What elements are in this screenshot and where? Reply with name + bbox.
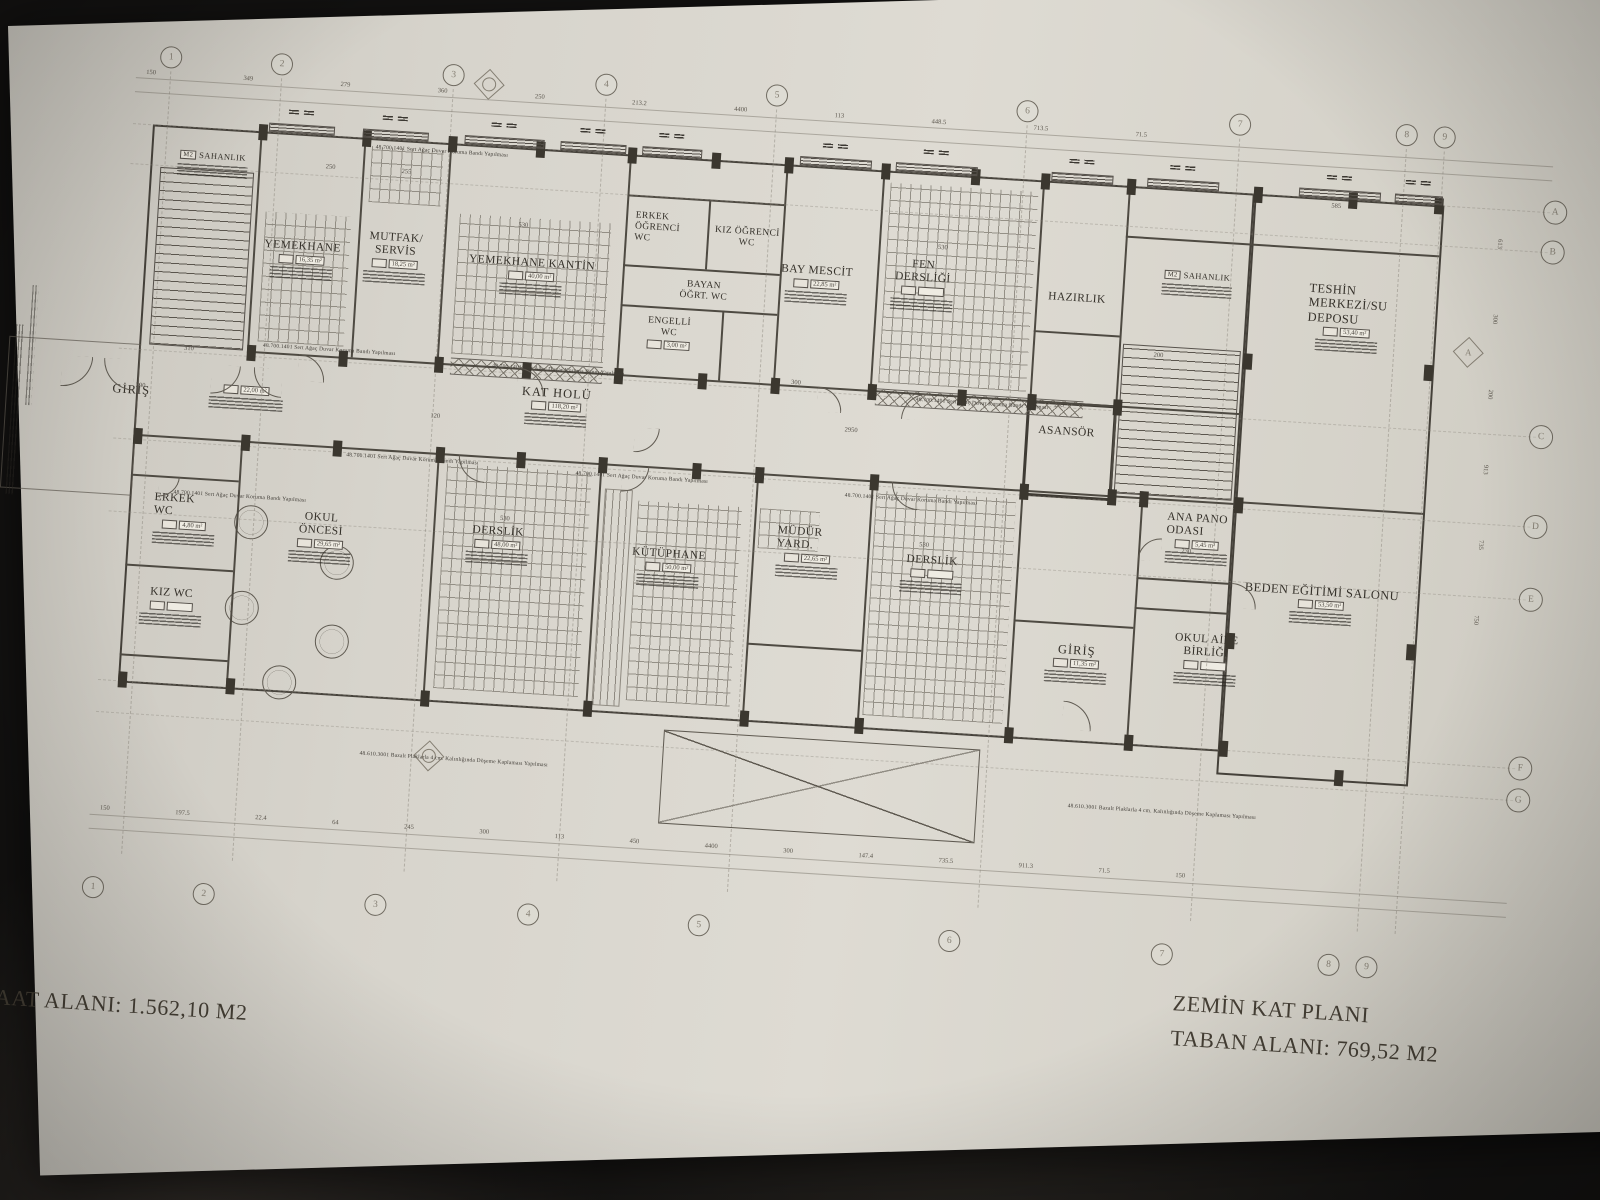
structural-column [1243, 353, 1253, 370]
room-label-derslik-1: DERSLİK 48,00 m² [465, 523, 529, 566]
room-label-bay-mescit: BAY MESCİT 22,85 m² [779, 262, 853, 306]
dimension-label: 250 [326, 163, 336, 171]
grid-bubble-bottom: 6 [938, 929, 961, 952]
room-label-ana-pano-odasi: ANA PANO ODASI 5,45 m² [1164, 511, 1229, 567]
structural-column [869, 474, 879, 491]
grid-bubble-letter: G [1505, 788, 1530, 813]
grid-bubble-bottom: 5 [687, 914, 710, 937]
drawing-paper-sheet: 150 349 279 360 250 213.2 4400 113 448.5… [8, 0, 1600, 1176]
room-label-engelli-wc: ENGELLİ WC 3,00 m² [646, 315, 691, 350]
room-label-teshin-merkezi: TESHİN MERKEZİ/SU DEPOSU 53,40 m² [1306, 281, 1389, 355]
structural-column [1225, 633, 1235, 650]
vent-mark [1327, 174, 1337, 180]
grid-bubble-top: 8 [1395, 123, 1418, 146]
dimension-label: 265 [1054, 402, 1064, 410]
structural-column [697, 373, 707, 390]
structural-column [692, 463, 702, 480]
room-label-yemekhane-kantin: YEMEKHANE KANTİN 40,00 m² [467, 253, 595, 300]
room-label-bayan-ogrt-wc: BAYAN ÖĞRT. WC [679, 279, 728, 304]
grid-bubble-top: 1 [160, 46, 183, 69]
grid-bubble-letter: E [1518, 587, 1543, 612]
dimension-label: 530 [518, 222, 528, 230]
taban-alani-text: TABAN ALANI: 769,52 M2 [1170, 1025, 1439, 1068]
dimension-label: 120 [430, 412, 440, 420]
grid-bubble-letter: B [1540, 240, 1565, 265]
structural-column [420, 690, 430, 707]
vent-mark [1406, 179, 1416, 185]
m2-tag: M2 [180, 150, 196, 160]
structural-column [1253, 187, 1263, 204]
room-label-kiz-wc: KIZ WC [139, 585, 203, 628]
vent-mark [1069, 158, 1079, 164]
structural-column [854, 718, 864, 735]
vent-mark [383, 115, 393, 121]
classroom-desks [862, 490, 1016, 723]
structural-column [583, 701, 593, 718]
section-marker-a: A [1453, 337, 1484, 368]
room-label-mutfak-servis: MUTFAK/ SERVİS 18,25 m² [362, 230, 427, 286]
room-label-yemekhane: YEMEKHANE 16,35 m² [262, 238, 341, 282]
vent-mark [1342, 175, 1352, 181]
structural-column [241, 435, 251, 452]
floor-plan-drawing: 150 349 279 360 250 213.2 4400 113 448.5… [0, 36, 1595, 1143]
structural-column [246, 345, 256, 362]
grid-bubble-top: 6 [1016, 100, 1039, 123]
grid-bubble-bottom: 2 [192, 882, 215, 905]
dimension-label: 585 [1331, 203, 1341, 211]
vent-mark [1084, 159, 1094, 165]
floor-covering-note: 48.610.3001 Bazalt Plaklarla 4 cm. Kalın… [1067, 803, 1256, 821]
dimension-label: 300 [791, 379, 801, 387]
classroom-desks [433, 463, 592, 697]
vent-mark [823, 142, 833, 148]
structural-column [770, 378, 780, 395]
structural-column [711, 153, 721, 170]
grid-bubble-letter: A [1542, 200, 1567, 225]
grid-bubble-letter: C [1528, 424, 1553, 449]
room-label-kiz-ogrenci-wc: KIZ ÖĞRENCİ WC [714, 225, 780, 251]
vent-mark [838, 143, 848, 149]
structural-column [739, 710, 749, 727]
grid-bubble-top: 9 [1433, 126, 1456, 149]
dimension-label: 310 [184, 345, 194, 353]
room-label-giris-rear: GİRİŞ 11,35 m² [1044, 641, 1108, 685]
structural-column [1334, 770, 1344, 787]
grid-bubble-bottom: 7 [1150, 943, 1173, 966]
stair-flight-left [149, 167, 254, 351]
structural-column [1019, 484, 1029, 501]
grid-bubble-letter: F [1507, 756, 1532, 781]
structural-column [1124, 735, 1134, 752]
vent-mark [506, 123, 516, 129]
grid-bubble-top: 7 [1228, 113, 1251, 136]
dimension-label: 200 [1153, 352, 1163, 360]
room-label-fen-dersligi: FEN DERSLİĞİ [890, 257, 955, 313]
vent-mark [1185, 165, 1195, 171]
grid-bubble-bottom: 9 [1355, 956, 1378, 979]
vent-mark [924, 149, 934, 155]
vent-mark [595, 128, 605, 134]
structural-column [598, 457, 608, 474]
grid-bubble-bottom: 4 [516, 903, 539, 926]
dimension-label: 530 [500, 515, 510, 523]
structural-column [118, 671, 128, 688]
entrance-ramp [658, 730, 980, 844]
grid-bubble-bottom: 3 [364, 893, 387, 916]
structural-column [1126, 179, 1136, 196]
structural-column [133, 428, 143, 445]
dimension-numbers-right: 613 300 200 913 735 750 [1461, 239, 1503, 798]
grid-bubble-top: 3 [442, 63, 465, 86]
insaat-alani-text: İNŞAAT ALANI: 1.562,10 M2 [0, 982, 248, 1026]
dimension-label: 230 [1181, 548, 1191, 556]
structural-column [755, 467, 765, 484]
section-marker-letter: A [1458, 342, 1479, 363]
structural-column [627, 147, 637, 164]
room-label-sahanlik-right: M2SAHANLIK [1161, 270, 1232, 299]
vent-mark [492, 122, 502, 128]
structural-column [332, 440, 342, 457]
structural-column [258, 124, 268, 141]
vent-mark [304, 110, 314, 116]
structural-column [881, 163, 891, 180]
vent-mark [659, 132, 669, 138]
structural-column [1139, 491, 1149, 508]
structural-column [867, 384, 877, 401]
room-label-erkek-wc: ERKEK WC 4,80 m² [152, 491, 217, 547]
structural-column [1113, 399, 1123, 416]
grid-bubble-letter: D [1523, 514, 1548, 539]
room-label-sahanlik-left: M2SAHANLIK [177, 150, 248, 179]
library-tables [626, 501, 742, 707]
kitchen-counters [369, 146, 444, 206]
dimension-label: 300 [135, 382, 145, 390]
structural-column [1423, 365, 1433, 382]
room-label-okul-oncesi: OKUL ÖNCESİ 29,65 m² [288, 510, 353, 566]
vent-mark [1170, 164, 1180, 170]
dimension-line [89, 828, 1506, 918]
vent-mark [289, 109, 299, 115]
room-label-kutuphane: KÜTÜPHANE 50,00 m² [630, 546, 706, 590]
vent-mark [674, 133, 684, 139]
grid-bubble-top: 4 [595, 73, 618, 96]
vent-mark [580, 127, 590, 133]
vent-mark [398, 116, 408, 122]
structural-column [225, 678, 235, 695]
north-arrow-circle [479, 74, 499, 94]
structural-column [434, 357, 444, 374]
m2-tag: M2 [1164, 270, 1180, 280]
grid-bubble-top: 5 [765, 84, 788, 107]
photographed-floor-plan: { "title_block": { "plan_title": "ZEMİN … [0, 0, 1600, 1200]
structural-column [1004, 727, 1014, 744]
vent-mark [939, 150, 949, 156]
dimension-label: 255 [401, 168, 411, 176]
dimension-label: 530 [938, 244, 948, 252]
grid-bubble-top: 2 [270, 53, 293, 76]
vent-mark [1421, 180, 1431, 186]
structural-column [1406, 644, 1416, 661]
plan-title-text: ZEMİN KAT PLANI [1172, 990, 1370, 1028]
structural-column [1041, 173, 1051, 190]
floor-covering-note: 48.610.3001 Bazalt Plaklarla 4 cm. Kalın… [359, 751, 548, 769]
structural-column [1218, 741, 1228, 758]
grid-bubble-bottom: 8 [1317, 953, 1340, 976]
structural-column [784, 157, 794, 174]
grid-bubble-bottom: 1 [81, 875, 104, 898]
room-label-erkek-ogrenci-wc: ERKEK ÖĞRENCİ WC [634, 210, 681, 246]
structural-column [1234, 497, 1244, 514]
dimension-label: 2950 [844, 426, 857, 434]
structural-column [1107, 489, 1117, 506]
structural-column [516, 452, 526, 469]
room-label-derslik-2: DERSLİK [899, 553, 963, 596]
dimension-label: 530 [919, 541, 929, 549]
